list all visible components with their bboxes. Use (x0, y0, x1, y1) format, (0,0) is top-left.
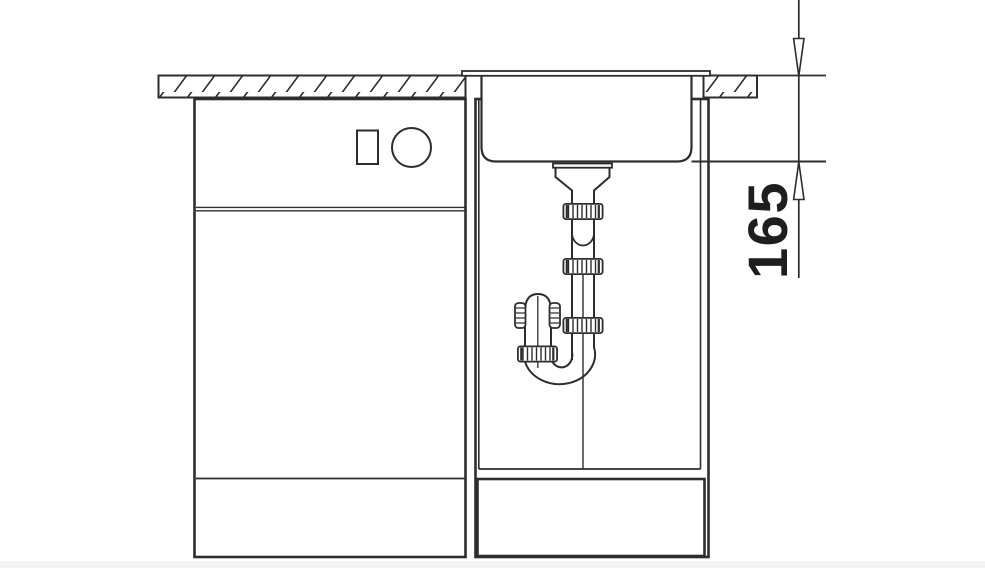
appliance-cabinet-body (195, 99, 466, 557)
appliance-cabinet (195, 99, 466, 557)
bowl-walls (482, 75, 692, 162)
dimension-arrow-top (794, 39, 804, 77)
compression-nut-2 (563, 259, 602, 274)
control-square (357, 131, 378, 165)
compression-nut-4 (518, 346, 557, 361)
control-panel-divider (196, 207, 465, 210)
drain-funnel (556, 168, 610, 204)
tailpipe-upper (572, 220, 594, 258)
sink-installation-diagram: 165 (0, 0, 985, 568)
dimension-value: 165 (736, 181, 799, 279)
page-bottom-strip (0, 561, 985, 568)
cleanout-ear-left (515, 303, 526, 328)
worktop-right-section (704, 76, 758, 98)
cleanout-ear-right (550, 303, 561, 328)
dimension-165: 165 (692, 0, 827, 279)
compression-nut-3 (563, 318, 602, 333)
sink-bowl (482, 75, 692, 168)
worktop-left-section (159, 76, 466, 98)
compression-nut-1 (563, 204, 602, 219)
drain-flange (553, 164, 612, 168)
drain-assembly (515, 168, 610, 470)
control-knob (392, 128, 431, 167)
plinth-drawer-panel (478, 479, 705, 556)
telescopic-joint (572, 233, 594, 246)
bowl-rim (462, 71, 710, 76)
diagram-canvas: 165 (0, 0, 985, 568)
